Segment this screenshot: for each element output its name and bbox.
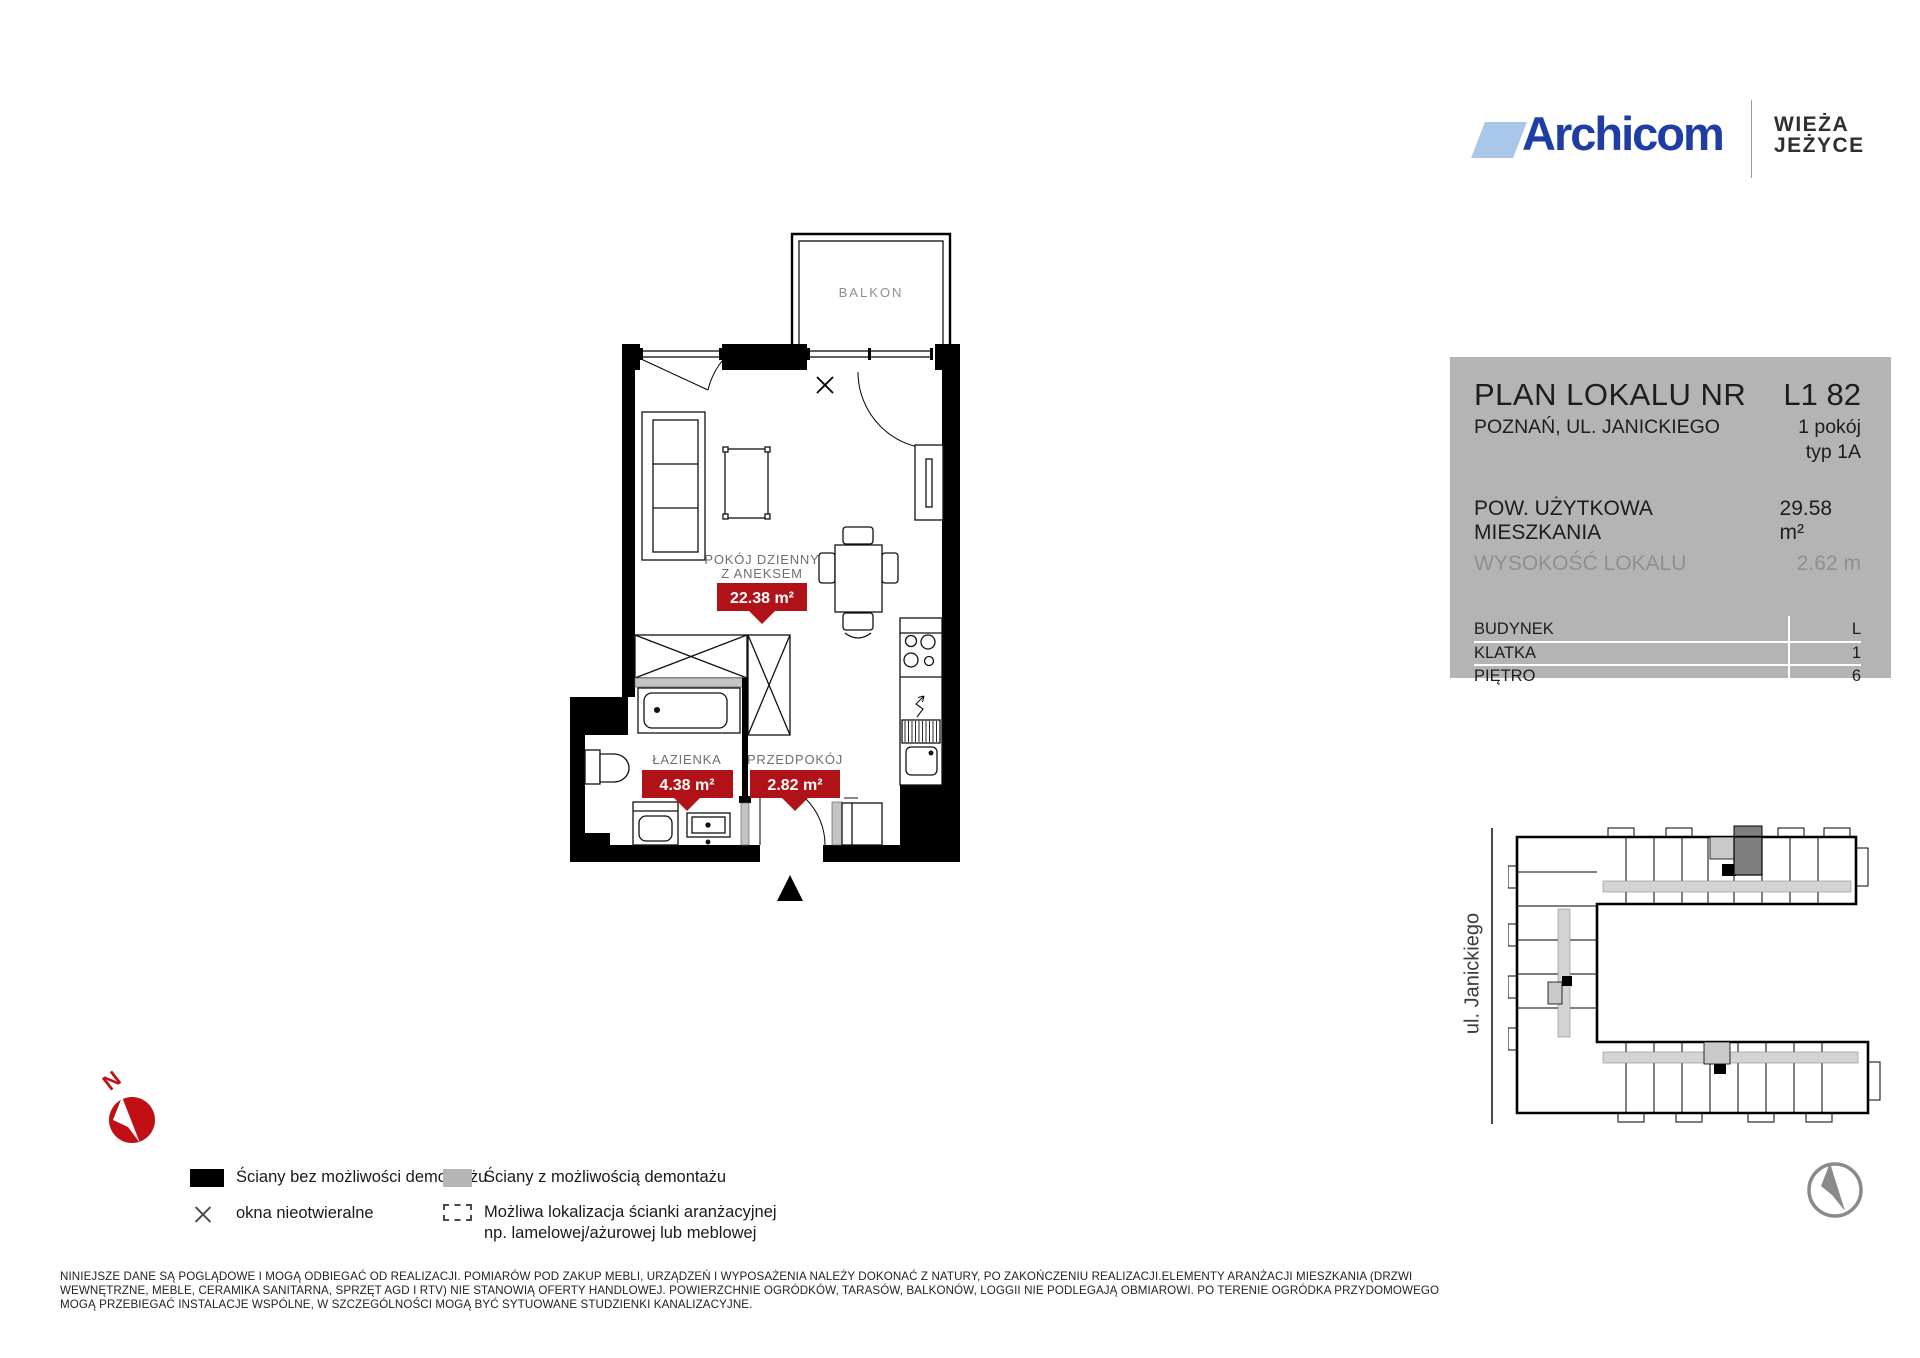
hall-area: 2.82 m²	[767, 777, 822, 794]
living-room-label2: Z ANEKSEM	[721, 566, 803, 581]
legend-label-line2: np. lamelowej/ażurowej lub meblowej	[484, 1223, 777, 1244]
coffee-table	[725, 449, 768, 518]
map-compass-icon	[1804, 1157, 1866, 1219]
table-value: L	[1852, 620, 1861, 639]
area-value: 29.58 m²	[1780, 497, 1861, 545]
legend-item-fixed-windows: okna nieotwieralne	[190, 1204, 374, 1223]
legend-item-demountable-walls: Ściany z możliwością demontażu	[443, 1168, 726, 1187]
archicom-logo-icon	[1471, 122, 1527, 158]
dish-rack	[902, 720, 940, 743]
balcony-label: BALKON	[839, 285, 904, 300]
legend-label: Ściany z możliwością demontażu	[484, 1168, 726, 1187]
dashed-wall-swatch-icon	[443, 1204, 472, 1221]
street-label: ul. Janickiego	[1462, 889, 1485, 1059]
floor-plan-drawing: BALKON	[540, 220, 1000, 920]
fixed-window-x-icon	[817, 377, 833, 393]
area-label: POW. UŻYTKOWA MIESZKANIA	[1474, 497, 1780, 545]
compass-needle	[109, 1097, 155, 1143]
living-room-area: 22.38 m²	[730, 590, 794, 607]
chair	[819, 553, 835, 583]
table-value: 6	[1852, 667, 1861, 686]
balcony-door-arc	[858, 372, 935, 449]
archicom-logo-text: Archicom	[1522, 106, 1723, 161]
bathroom-sliding-door	[741, 803, 749, 845]
table-row-budynek: BUDYNEK L	[1474, 618, 1861, 641]
legend-label: okna nieotwieralne	[236, 1204, 374, 1223]
kitchen	[900, 618, 942, 785]
balcony: BALKON	[792, 234, 950, 344]
disclaimer-line: NINIEJSZE DANE SĄ POGLĄDOWE I MOGĄ ODBIE…	[60, 1270, 1439, 1284]
north-label: N	[98, 1066, 127, 1096]
sofa	[642, 412, 705, 560]
unit-type: typ 1A	[1798, 440, 1861, 465]
disclaimer-line: WEWNĘTRZNE, MEBLE, CERAMIKA SANITARNA, S…	[60, 1284, 1439, 1298]
table-label: KLATKA	[1474, 644, 1536, 663]
project-name-line1: WIEŻA	[1774, 114, 1865, 135]
toilet	[585, 750, 600, 784]
map-corridors	[1558, 881, 1858, 1063]
fixed-window-x-icon	[190, 1204, 224, 1222]
highlighted-unit	[1734, 837, 1762, 875]
disclaimer-line: MOGĄ PRZEBIEGAĆ INSTALACJE WSPÓLNE, W SZ…	[60, 1298, 1439, 1312]
unit-address: POZNAŃ, UL. JANICKIEGO	[1474, 416, 1720, 439]
north-compass-icon	[109, 1097, 155, 1143]
dining-table	[835, 545, 882, 612]
living-room-label: POKÓJ DZIENNY	[704, 552, 819, 567]
demountable-wall-swatch-icon	[443, 1169, 472, 1187]
chair	[882, 553, 898, 583]
floor-plan-sheet: Archicom WIEŻA JEŻYCE PLAN LOKALU NR L1 …	[0, 0, 1920, 1358]
chair	[843, 527, 873, 544]
table-label: BUDYNEK	[1474, 620, 1554, 639]
project-name-line2: JEŻYCE	[1774, 135, 1865, 156]
demountable-wall	[832, 802, 842, 845]
panel-title: PLAN LOKALU NR	[1474, 377, 1746, 413]
unit-info-panel: PLAN LOKALU NR L1 82 POZNAŃ, UL. JANICKI…	[1450, 357, 1891, 678]
building-map	[1508, 824, 1882, 1126]
brand-header: Archicom WIEŻA JEŻYCE	[1460, 92, 1880, 187]
hall-label: PRZEDPOKÓJ	[747, 752, 843, 767]
bathroom-label: ŁAZIENKA	[652, 752, 721, 767]
street-line	[1491, 828, 1493, 1124]
height-value: 2.62 m	[1797, 552, 1861, 576]
hall-cabinet	[842, 798, 882, 845]
demountable-wall	[635, 678, 745, 687]
table-row-klatka: KLATKA 1	[1474, 641, 1861, 664]
legend-label: Możliwa lokalizacja ścianki aranżacyjnej	[484, 1202, 777, 1223]
table-label: PIĘTRO	[1474, 667, 1535, 686]
unit-location-table: BUDYNEK L KLATKA 1 PIĘTRO 6	[1474, 618, 1861, 687]
chair	[843, 613, 873, 630]
bathroom-area: 4.38 m²	[659, 777, 714, 794]
project-name: WIEŻA JEŻYCE	[1774, 114, 1865, 156]
unit-number: L1 82	[1783, 377, 1861, 413]
rooms-count: 1 pokój	[1798, 415, 1861, 440]
legend-item-arrangement-wall: Możliwa lokalizacja ścianki aranżacyjnej…	[443, 1202, 777, 1244]
height-label: WYSOKOŚĆ LOKALU	[1474, 552, 1686, 576]
entrance-arrow-icon	[777, 875, 803, 901]
brand-divider	[1751, 100, 1752, 178]
solid-wall-swatch-icon	[190, 1169, 224, 1187]
floor-plan: BALKON	[540, 220, 1000, 920]
disclaimer: NINIEJSZE DANE SĄ POGLĄDOWE I MOGĄ ODBIE…	[60, 1270, 1439, 1312]
table-value: 1	[1852, 644, 1861, 663]
table-row-pietro: PIĘTRO 6	[1474, 664, 1861, 687]
washing-machine	[633, 802, 678, 845]
